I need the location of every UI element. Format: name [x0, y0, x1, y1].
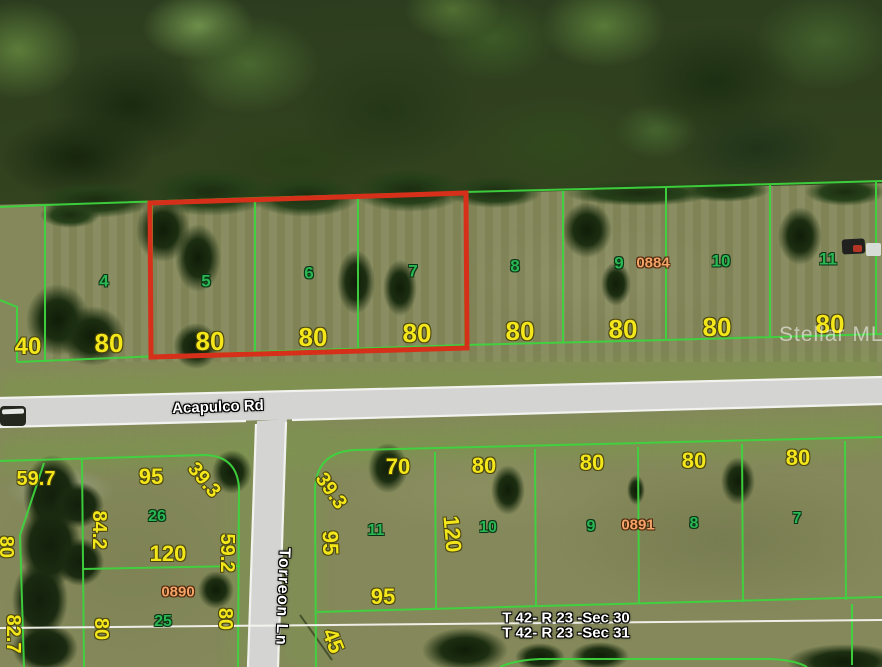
dimension-label: 80	[609, 316, 638, 342]
dimension-label: 95	[139, 466, 163, 488]
dimension-label: 80	[91, 618, 111, 640]
lot-number: 9	[614, 255, 623, 272]
lot-number: 10	[479, 520, 497, 536]
street-label-acapulco: Acapulco Rd	[172, 398, 264, 416]
lot-number: 8	[690, 516, 699, 532]
acapulco-road-surface	[0, 377, 882, 427]
lot-number: 7	[793, 511, 802, 527]
dimension-label: 95	[371, 586, 395, 608]
dimension-label: 59.2	[217, 534, 237, 573]
dimension-label: 95	[319, 530, 342, 555]
lot-number: 11	[819, 251, 837, 268]
lot-number: 5	[201, 273, 210, 290]
plat-book-number: 0884	[636, 256, 669, 271]
street-label-torreon: Torreon Ln	[272, 548, 291, 647]
lot-number: 9	[587, 519, 596, 535]
aerial-plat-map: 4080808080808080804567890884101159.79539…	[0, 0, 882, 667]
dimension-label: 80	[299, 324, 328, 350]
lot-number: 7	[408, 263, 417, 280]
section-label-31: T 42- R 23 -Sec 31	[502, 626, 630, 641]
plat-book-number: 0891	[621, 518, 654, 533]
dimension-label: 80	[95, 330, 124, 356]
dimension-label: 80	[215, 608, 235, 630]
lot-number: 4	[99, 273, 108, 290]
dimension-label: 80	[196, 328, 225, 354]
dimension-label: 80	[703, 314, 732, 340]
dimension-label: 80	[472, 455, 496, 477]
section-label-30: T 42- R 23 -Sec 30	[502, 611, 630, 626]
lot-number: 26	[148, 509, 166, 525]
dimension-label: 40	[15, 335, 42, 359]
dimension-label: 80	[506, 318, 535, 344]
plat-overlay	[0, 0, 882, 667]
vehicle-truck	[842, 238, 866, 254]
dimension-label: 120	[150, 543, 187, 565]
dimension-label: 80	[0, 536, 16, 558]
lot-number: 10	[712, 253, 731, 270]
dimension-label: 80	[786, 447, 810, 469]
lot-number: 8	[510, 258, 519, 275]
dimension-label: 82.7	[3, 615, 23, 654]
section-line	[0, 620, 882, 628]
dimension-label: 80	[580, 452, 604, 474]
dimension-label: 120	[439, 515, 464, 553]
vehicle-car	[0, 406, 26, 426]
dimension-label: 80	[403, 320, 432, 346]
dimension-label: 80	[682, 450, 706, 472]
lot-number: 11	[368, 523, 385, 539]
dimension-label: 84.2	[89, 511, 109, 550]
dimension-label: 59.7	[17, 469, 56, 489]
stellar-mls-watermark: Stellar MLS	[779, 323, 882, 347]
plat-book-number: 0890	[161, 585, 194, 600]
vehicle-trailer	[866, 243, 881, 256]
dimension-label: 70	[386, 456, 410, 478]
lot-number: 25	[154, 614, 172, 630]
lot-number: 6	[304, 265, 313, 282]
